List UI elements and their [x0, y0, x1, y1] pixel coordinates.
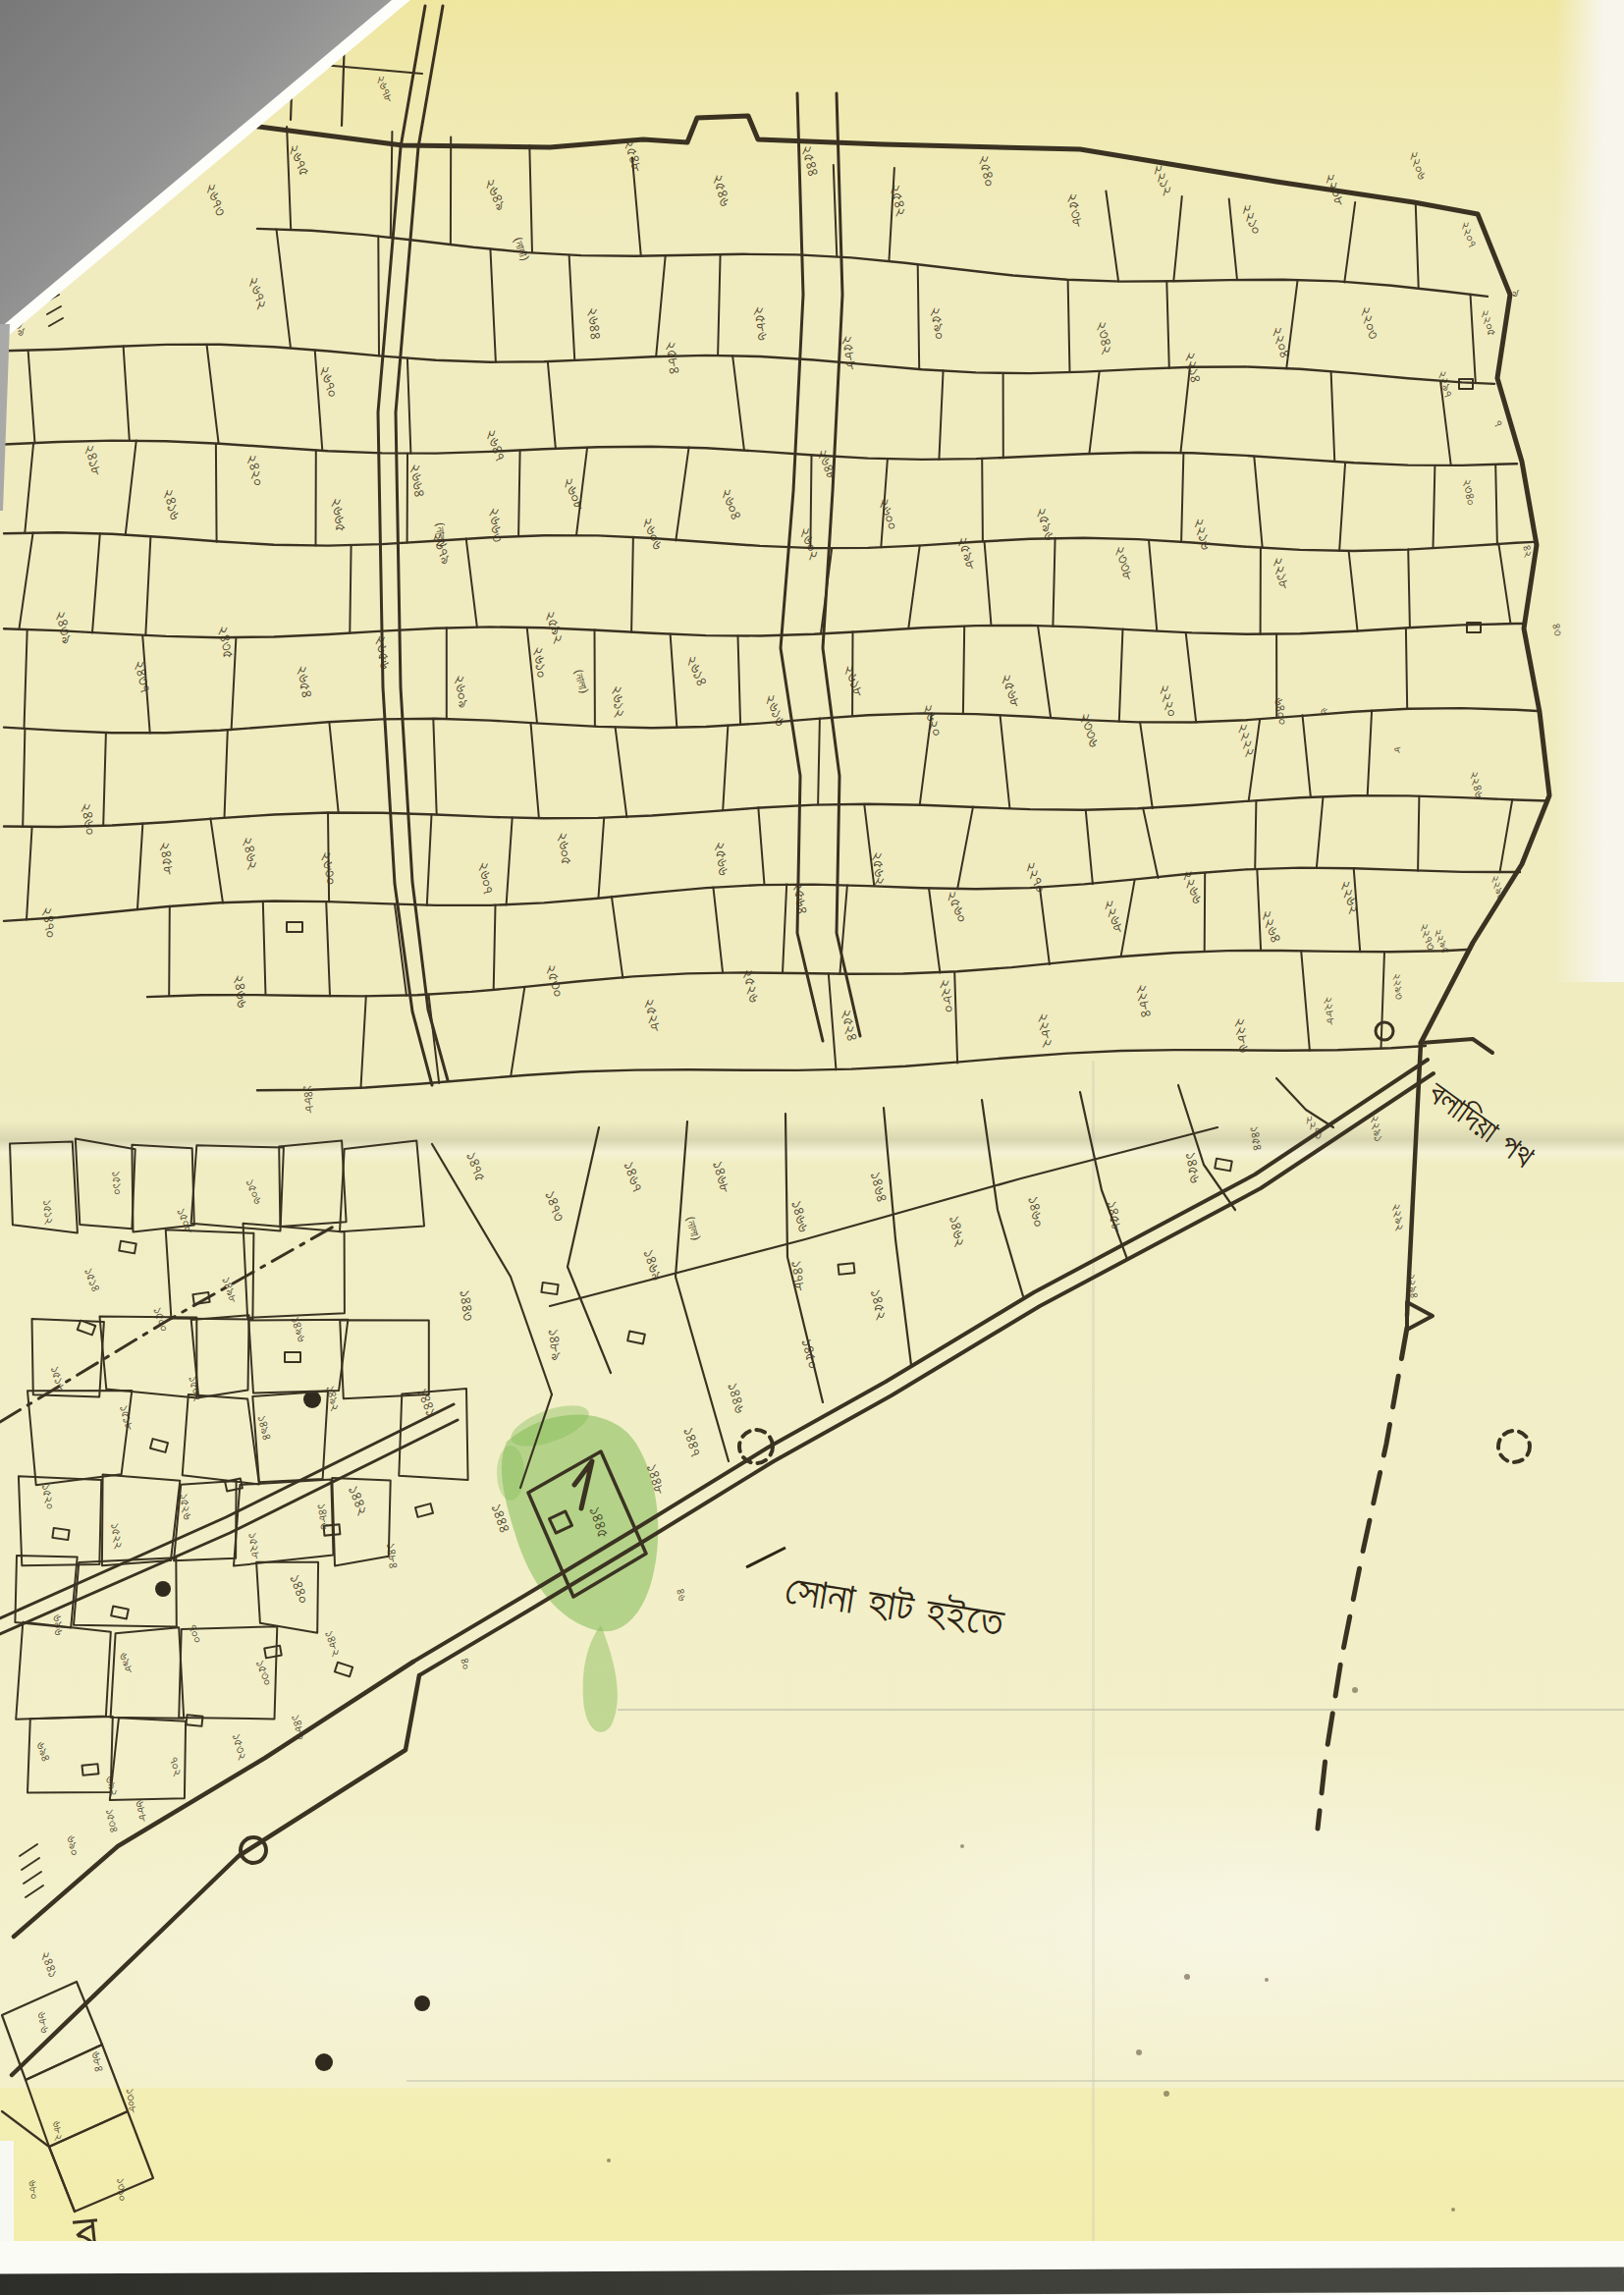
plot-number: ২৪৩৯: [52, 609, 79, 645]
road-exit-east: [1421, 1039, 1492, 1053]
plot-number: ২৬৫৬: [372, 634, 397, 671]
plot-number: ২৫৯২: [541, 608, 569, 645]
parcel-line: [225, 730, 228, 817]
plot-number: ২৬১০: [529, 646, 552, 680]
plot-number: ২৫৪০: [975, 153, 1001, 188]
plot-number: ২২০৭: [1458, 219, 1481, 248]
plot-number: ২২৮৪: [1133, 983, 1158, 1018]
plot-number: ৬৮৪: [88, 2049, 107, 2073]
plot-number: ৭০২: [166, 1755, 187, 1777]
parcel-line: [612, 897, 623, 978]
parcel-line: [1317, 797, 1324, 868]
plot-number: ১৩১০: [114, 2177, 131, 2202]
parcel-mesh: [4, 127, 1547, 1800]
parcel-line: [1166, 282, 1169, 368]
structure-rect: [52, 379, 1481, 1776]
parcel-line: [1406, 628, 1407, 709]
plot-number: ১৫৩২: [230, 1732, 251, 1762]
parcel-line: [100, 1317, 197, 1398]
plot-number: ২২৭০: [1021, 858, 1051, 895]
parcel-line: [287, 127, 291, 230]
parcel-line: [340, 1320, 429, 1398]
parcel-line: [102, 1475, 180, 1566]
plot-number: (নালা): [511, 235, 532, 263]
green-highlight-tuft: [497, 1446, 524, 1501]
parcel-line: [918, 264, 920, 369]
plot-number: ৬৮৬: [34, 2010, 54, 2035]
survey-triangle-marker: [1407, 1302, 1433, 1330]
parcel-line: [263, 902, 266, 995]
plot-number: ২৫৯৮: [953, 534, 982, 573]
plot-number: ১৫১২: [40, 1199, 59, 1225]
parcel-line: [210, 818, 223, 902]
plot-number: ২৪৬৬: [230, 973, 252, 1009]
field-strip-line: [823, 93, 860, 1036]
parcel-line: [147, 950, 1471, 997]
plot-number: ২২৪৬: [1467, 770, 1488, 799]
parcel-line: [4, 345, 1494, 384]
plot-number: ২৫২৪: [838, 1008, 863, 1043]
plot-number: ২২০৩: [1357, 304, 1384, 342]
plot-number: ১৪৭৮: [787, 1259, 811, 1292]
plot-number: ২৬০৪: [718, 485, 747, 522]
plot-number: ২৫৮৮: [839, 334, 863, 371]
plot-number: (নালা): [683, 1215, 703, 1242]
plot-number: ১৪৬৬: [787, 1199, 814, 1234]
plot-number: ২৬০৫: [554, 831, 577, 866]
plot-number: ৭০০: [186, 1622, 207, 1645]
parcel-line: [1301, 951, 1310, 1050]
plot-number: ১৪৬৮: [709, 1159, 736, 1195]
plot-number: ২৪৫৮: [156, 841, 180, 876]
parcel-line: [1053, 538, 1055, 627]
plot-number: ১৫২৮: [245, 1532, 265, 1560]
parcel-line: [1140, 723, 1153, 808]
parcel-line: [466, 538, 477, 627]
parcel-line: [507, 817, 513, 904]
parcel-line: [19, 1476, 101, 1565]
plot-number: ২২১০: [1238, 201, 1268, 238]
parcel-line: [407, 358, 411, 454]
scan-speck: [607, 1687, 1455, 2295]
plot-number: ২৫২৮: [640, 997, 667, 1034]
parcel-line: [4, 441, 1517, 465]
plot-number: ২২৮০: [936, 977, 961, 1013]
parcel-line: [1001, 715, 1010, 808]
plot-number: ২৬০২: [796, 524, 826, 562]
plot-number: ২৬৭৮: [373, 73, 398, 104]
plot-number: ৬৯৮: [116, 1650, 138, 1676]
plot-number: ১৪৪০: [286, 1572, 314, 1607]
plot-number: ২২৯০: [1489, 874, 1509, 902]
plot-number: ১৪৮০: [289, 1713, 310, 1741]
plot-number: ২৩৪২: [1093, 319, 1118, 355]
plot-number: ৮: [1390, 745, 1406, 755]
plot-number: ২৬০৯: [451, 674, 474, 709]
parcel-line: [279, 1141, 346, 1228]
parcel-line: [1408, 549, 1410, 628]
plot-number: ২৫৩৮: [1063, 191, 1089, 229]
plot-number: ২৫৯৬: [1032, 505, 1060, 542]
plot-number: ১৪৭৩: [541, 1188, 569, 1224]
parcel-line: [1255, 800, 1256, 869]
plot-number: ২৫৪৪: [798, 143, 825, 179]
plot-number: ২২৯২: [1389, 1202, 1409, 1231]
parcel-line: [490, 248, 496, 362]
plot-number: ২৬০৬: [638, 514, 669, 552]
plot-number: ২৩৩৬: [1076, 710, 1106, 749]
parcel-line: [216, 444, 217, 542]
parcel-line: [982, 459, 983, 541]
plot-number: ২২৮৮: [1321, 996, 1339, 1026]
plot-number: ১৪৮৪: [384, 1543, 403, 1569]
plot-number: ১৪৮৯: [545, 1329, 568, 1362]
parcel-line: [1086, 810, 1093, 885]
plot-number: ২৪১৯: [7, 307, 31, 339]
parcel-line: [27, 1391, 132, 1485]
parcel-line: [1106, 191, 1118, 282]
plot-number: ১৪৫৬: [1182, 1151, 1207, 1184]
plot-number: ১৫২২: [108, 1522, 128, 1551]
parcel-line: [25, 629, 27, 729]
parcel-line: [427, 815, 432, 905]
parcel-line: [829, 974, 837, 1070]
plot-number: ২২০৫: [1478, 307, 1500, 338]
parcel-line: [929, 889, 940, 973]
parcel-line: [671, 634, 677, 729]
parcel-line: [529, 145, 532, 251]
parcel-line: [191, 1145, 284, 1230]
plot-number: ৪৩: [1549, 622, 1566, 636]
plot-number: ২২১৪: [1181, 351, 1206, 384]
parcel-line: [531, 723, 539, 818]
plot-number: ১৫১৪: [81, 1266, 104, 1293]
parcel-line: [1303, 715, 1311, 797]
parcel-line: [1229, 199, 1237, 281]
plot-number: ২৬৬৪: [406, 463, 430, 498]
parcel-line: [783, 885, 786, 973]
green-highlight: [502, 1414, 658, 1631]
scanned-cadastral-map-page: ২৬৭৫২৬৭৪২৬৭৮২৬৭৩২৬৭২২৬৭০২৪১৯২৪১৮২৪১৬২৪২০…: [0, 0, 1624, 2295]
parcel-line: [361, 996, 366, 1087]
plot-number: ২৬৪৮: [814, 447, 842, 483]
hatch-mark: [20, 295, 63, 1897]
plot-number: ৬৮২: [50, 2119, 68, 2142]
parcel-line: [569, 255, 575, 360]
parcel-line: [1186, 632, 1197, 722]
plot-number: ২৬৫৪: [293, 664, 317, 699]
plot-number: ৬৮০: [26, 2179, 42, 2200]
plot-number: ১৪৪৬: [724, 1381, 750, 1415]
plot-number: ১৫২৬: [177, 1493, 196, 1521]
parcel-line: [963, 627, 964, 714]
plot-number: ২৪৪১: [37, 1949, 63, 1981]
parcel-line: [656, 255, 666, 355]
parcel-line: [257, 229, 1488, 297]
plot-number: ২২৮২: [1034, 1011, 1058, 1049]
parcel-line: [1089, 371, 1099, 454]
plot-number: ২৫৬৬: [711, 841, 734, 877]
road-corridor-south-line: [12, 1675, 419, 2075]
plot-number: ২৫৮৪: [662, 341, 684, 376]
plot-boundaries: [0, 6, 1549, 2295]
parcel-line: [326, 902, 330, 996]
plot-number: ২২২২: [1234, 721, 1262, 758]
parcel-line: [1471, 295, 1476, 383]
parcel-line: [329, 722, 338, 813]
parcel-line: [1498, 544, 1510, 625]
plot-number: ২২৯৪: [1404, 1273, 1422, 1299]
road-label-boladia-path: বলাদিয়া পথ: [1420, 1072, 1542, 1176]
parcel-line: [1418, 796, 1419, 871]
parcel-line: [758, 807, 764, 885]
plot-number: ২৪৩৫: [214, 625, 239, 660]
parcel-line: [616, 728, 627, 818]
plot-number: ২৫৮৬: [750, 305, 774, 342]
plot-number: ১৪৮৮: [299, 1084, 319, 1115]
parcel-line: [28, 351, 35, 444]
plot-number: ২৫৬২: [869, 851, 892, 887]
plot-number: ১৫২০: [39, 1483, 60, 1510]
parcel-line: [1149, 540, 1157, 631]
plot-number: ১৪৮২: [322, 1628, 346, 1658]
plot-number: ২৪৭০: [38, 905, 62, 939]
parcel-line: [174, 1481, 237, 1560]
plot-number: ২৫৪২: [887, 183, 912, 218]
plot-number: ২২৬২: [1336, 878, 1365, 916]
plot-number: ১৫১৮: [117, 1403, 138, 1432]
plot-number: ২২০৬: [1405, 148, 1432, 182]
plot-number: ২৪১৬: [159, 487, 186, 522]
parcel-line: [277, 230, 291, 348]
plot-number: ২২৯৭: [1435, 369, 1457, 399]
plot-number: ২৬৪৯: [481, 175, 512, 213]
plot-number: ৬৯০: [64, 1833, 83, 1857]
parcel-line: [378, 236, 379, 355]
parcel-line: [713, 887, 723, 972]
plot-number: ২২৬৮: [1100, 897, 1130, 936]
parcel-line: [1257, 869, 1261, 951]
green-highlight-streak: [583, 1625, 618, 1732]
plot-number: ২৫৩০: [542, 962, 568, 999]
dashed-boundary-line: [1318, 1328, 1407, 1829]
parcel-line: [1381, 952, 1385, 1048]
plot-number: ১৪৫৮: [1103, 1199, 1127, 1233]
parcel-line: [518, 451, 520, 536]
plot-number: ২২৯১: [1368, 1115, 1387, 1143]
parcel-line: [723, 726, 728, 810]
plot-number: (নালা): [433, 521, 450, 548]
parcel-line: [494, 905, 496, 990]
parcel-line: [939, 370, 943, 460]
parcel-line: [1434, 465, 1435, 548]
parcel-line: [350, 545, 351, 632]
parcel-line: [4, 532, 1534, 551]
plot-number: ১৫৩০: [253, 1658, 277, 1687]
parcel-line: [92, 533, 100, 632]
parcel-line: [4, 868, 1520, 921]
plot-number: ১৪৫২: [867, 1287, 893, 1322]
parcel-line: [1205, 873, 1206, 952]
cadastral-map-drawing: ২৬৭৫২৬৭৪২৬৭৮২৬৭৩২৬৭২২৬৭০২৪১৯২৪১৮২৪১৬২৪২০…: [0, 0, 1624, 2295]
plot-number: ২৪২০: [243, 453, 269, 488]
parcel-line: [732, 355, 744, 450]
parcel-line: [738, 636, 741, 725]
plot-number: ২৬০৮: [560, 474, 590, 513]
parcel-line: [1143, 808, 1158, 878]
plot-number: ২৩৪০: [1460, 478, 1480, 507]
plot-number: ১৪৬৯: [640, 1247, 668, 1283]
plot-number: ২২৬৪: [1258, 907, 1286, 945]
plot-number: ২৬০৭: [474, 860, 499, 896]
plot-number: ২৬১২: [609, 684, 631, 718]
parcel-line: [340, 1141, 424, 1232]
plot-number: ১৪৭৫: [462, 1149, 491, 1183]
parcel-line: [25, 443, 33, 532]
plot-number: ২৬২০: [919, 701, 948, 738]
parcel-line: [599, 818, 605, 898]
plot-number: ১৪৬৭: [620, 1159, 648, 1194]
plot-number: ১৪৪২: [345, 1483, 374, 1518]
plot-number: ১৪৬২: [946, 1214, 971, 1248]
plot-number: ২৬৪৭: [482, 426, 512, 464]
plot-number: ২৬৪৪: [584, 306, 607, 340]
plot-number: ২২৭১: [1302, 1112, 1328, 1141]
plot-number: ১৫৩৪: [103, 1808, 122, 1834]
parcel-line: [548, 361, 556, 449]
plot-number: ২৪১৮: [81, 442, 108, 477]
parcel-line: [16, 1622, 111, 1720]
plot-number: ২৪৬০: [77, 801, 101, 836]
plot-number: ২৬৭০: [315, 363, 344, 400]
parcel-line: [1368, 711, 1372, 796]
village-lane-line: [0, 1404, 454, 1618]
plot-number: ২৬৬৩: [485, 507, 508, 543]
parcel-line: [19, 533, 32, 629]
parcel-line: [1254, 457, 1262, 548]
plot-number: ২৬১৮: [840, 662, 870, 699]
parcel-line: [126, 441, 136, 535]
plot-number: ৬৪০০: [1271, 696, 1293, 727]
parcel-line: [511, 988, 524, 1076]
plot-number: ২৪৬২: [239, 836, 264, 872]
label-tick-mark: [746, 1548, 785, 1567]
plot-number: ২৬১৪: [682, 652, 712, 688]
road-label-from-sona-hat: সোনা হাট হইতে: [782, 1563, 1008, 1648]
plot-number: ১৪৯৪: [254, 1414, 275, 1442]
parcel-line: [1500, 799, 1513, 872]
parcel-line: [957, 807, 973, 890]
parcel-line: [1331, 371, 1335, 462]
plot-number: ৬৮৮: [133, 1798, 152, 1824]
parcel-line: [1068, 280, 1070, 372]
plot-number: ১৩০৮: [123, 2088, 140, 2114]
plot-number: ৯: [1508, 289, 1525, 299]
parcel-line: [433, 719, 436, 815]
plot-number: ২৫৯০: [926, 305, 950, 341]
parcel-line: [111, 1627, 185, 1719]
parcel-line: [818, 718, 820, 804]
parcel-line: [145, 536, 150, 635]
plot-number: ২৫৪৮: [621, 137, 648, 175]
parcel-line: [27, 827, 32, 920]
village-road-line: [378, 6, 432, 1085]
parcel-line: [137, 824, 142, 909]
plot-number: ২৬৬৫: [328, 497, 352, 533]
plot-number: ১৪৪৩: [456, 1289, 478, 1322]
parcel-line: [183, 1394, 259, 1485]
parcel-line: [821, 548, 832, 633]
parcel-line: [124, 347, 130, 441]
plot-number: ১৪৪৭: [679, 1425, 707, 1458]
plot-number: ২৫৬৪: [789, 881, 812, 915]
plot-number: ২৩৩৮: [1110, 544, 1139, 583]
plot-number: ৪৬: [674, 1587, 690, 1603]
plot-number: ২২২০: [1156, 683, 1183, 719]
parcel-line: [244, 1224, 345, 1318]
parcel-line: [23, 729, 25, 827]
corner-handwritten-mark: ব্র: [68, 2197, 102, 2268]
main-road-north-line: [413, 1060, 1428, 1662]
plot-number: ২৬০০: [875, 496, 903, 532]
parcel-line: [1495, 464, 1497, 544]
plot-number: ২৫৬৮: [998, 671, 1027, 709]
plot-number: ১৪৬০: [1024, 1195, 1050, 1229]
parcel-line: [103, 733, 106, 826]
plot-number: ৬৯৬: [50, 1613, 68, 1636]
plot-number: (নালা): [571, 668, 591, 695]
dashed-circle-marker: [1498, 1431, 1530, 1462]
plot-number: ২৬৩০: [317, 849, 343, 886]
plot-number: ৬৯৪: [33, 1739, 55, 1764]
parcel-line: [1119, 628, 1123, 721]
plot-number: ২৬৭২: [244, 274, 273, 311]
junction-circle: [1376, 1022, 1393, 1040]
parcel-line: [166, 1229, 254, 1319]
plot-number: ৬৯২: [102, 1774, 124, 1798]
plot-number: ১৫১৬: [48, 1364, 70, 1393]
parcel-line: [315, 351, 323, 451]
parcel-line: [676, 447, 688, 540]
parcel-line: [1173, 196, 1182, 281]
parcel-line: [1181, 453, 1183, 542]
plot-number: ১৫০৬: [244, 1176, 267, 1206]
plot-number: ২৫৪৬: [709, 172, 735, 208]
parcel-line: [834, 165, 838, 256]
parcel-line: [1339, 463, 1345, 551]
parcel-line: [207, 345, 219, 444]
plot-number: ১৫১০: [109, 1171, 127, 1196]
plot-number: ৭: [1490, 418, 1507, 428]
plot-number: ১৪৫০: [797, 1337, 824, 1370]
parcel-line: [391, 132, 393, 238]
plot-number: ২২১৬: [1190, 516, 1217, 552]
parcel-line: [4, 795, 1547, 827]
parcel-line: [1416, 205, 1419, 288]
parcel-line: [169, 906, 170, 996]
plot-number: ৪০: [458, 1657, 474, 1670]
plot-number: ১৪৫৪: [1247, 1125, 1266, 1152]
plot-number: ২২৯৩: [1390, 973, 1407, 1001]
parcel-line: [631, 537, 633, 632]
plot-number: ১৪৮৬: [314, 1503, 333, 1531]
parcel-line: [908, 546, 919, 628]
plot-number: ২৬৭৩: [202, 181, 232, 219]
plot-number: ২২১৮: [1269, 555, 1295, 591]
parcel-line: [985, 541, 992, 626]
parcel-line: [1038, 626, 1051, 717]
road-corridor-north-line: [14, 1662, 413, 1937]
